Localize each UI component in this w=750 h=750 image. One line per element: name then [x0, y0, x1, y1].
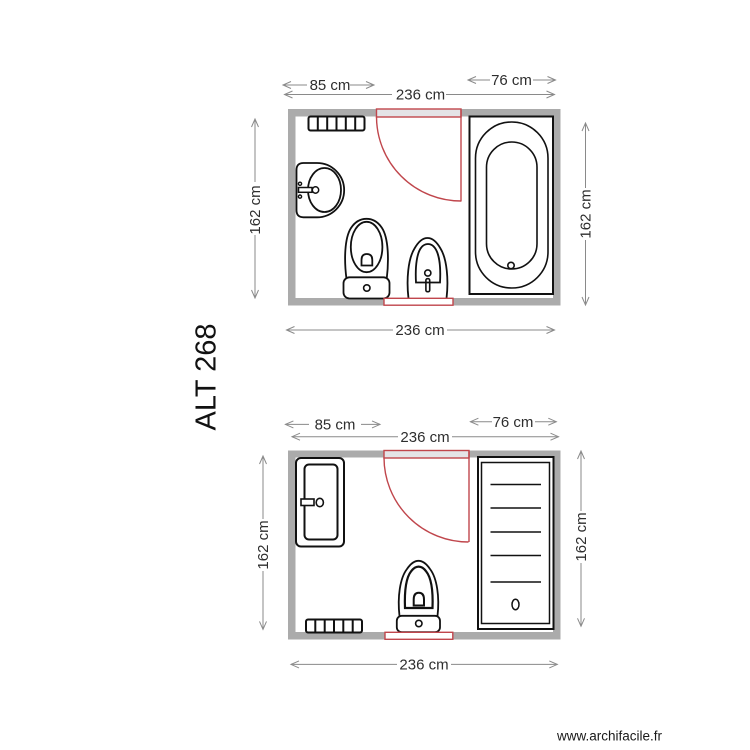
svg-text:236 cm: 236 cm: [399, 657, 448, 674]
svg-text:236 cm: 236 cm: [395, 322, 444, 339]
svg-text:ALT 268: ALT 268: [191, 324, 223, 431]
svg-text:162 cm: 162 cm: [578, 189, 595, 238]
svg-text:236 cm: 236 cm: [400, 429, 449, 446]
svg-text:85 cm: 85 cm: [310, 77, 351, 94]
svg-text:76 cm: 76 cm: [491, 72, 532, 89]
svg-text:236 cm: 236 cm: [396, 87, 445, 104]
svg-text:76 cm: 76 cm: [493, 414, 534, 431]
svg-text:www.archifacile.fr: www.archifacile.fr: [556, 729, 663, 744]
svg-text:162 cm: 162 cm: [255, 520, 272, 569]
svg-text:162 cm: 162 cm: [573, 512, 590, 561]
svg-text:85 cm: 85 cm: [315, 417, 356, 434]
svg-text:162 cm: 162 cm: [247, 185, 264, 234]
